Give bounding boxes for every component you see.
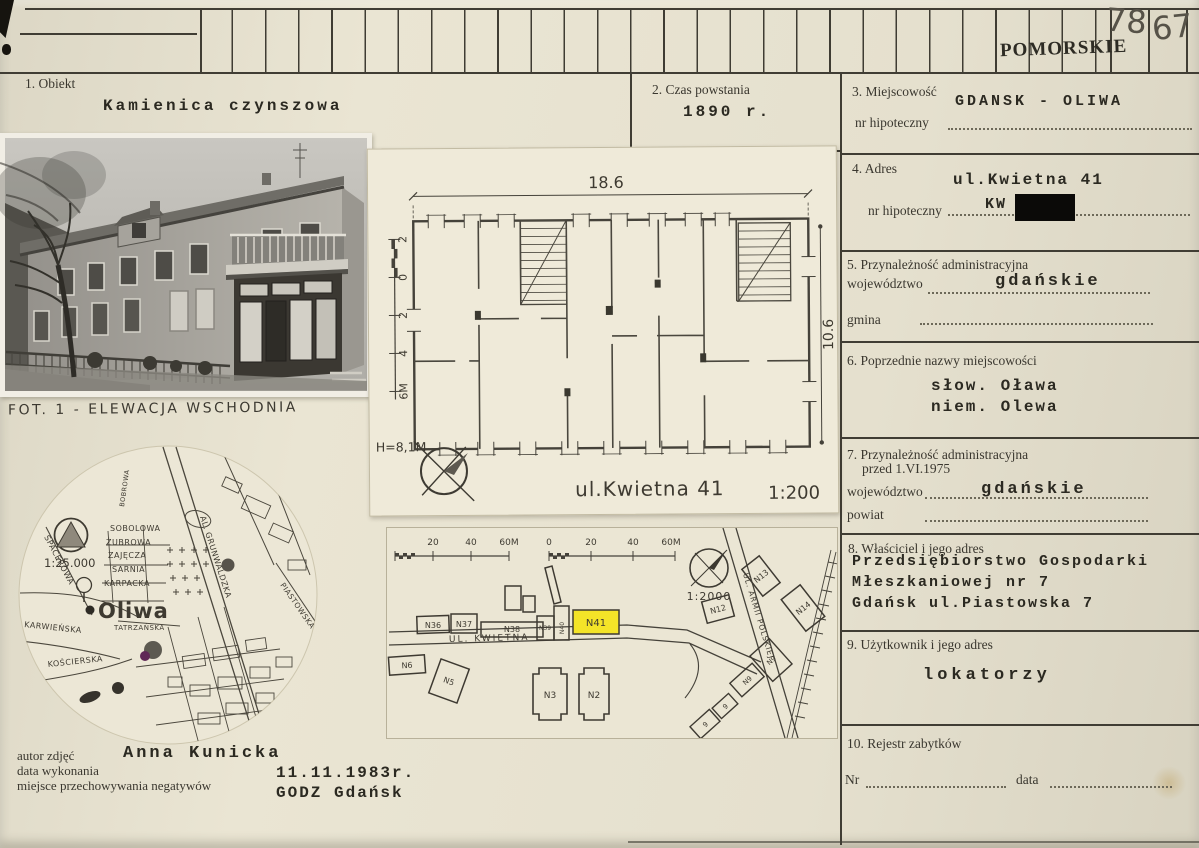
building-n14: N14	[781, 585, 825, 631]
scalebar-tick: 20	[427, 538, 439, 548]
scalebar-tick: 60M	[661, 538, 680, 548]
nr-label: Nr	[845, 772, 859, 788]
name-line-1: słow. Oława	[931, 377, 1059, 395]
redaction-bar	[1015, 194, 1075, 221]
svg-text:N9: N9	[741, 675, 754, 687]
floor-plan-sheet: 18.6	[367, 145, 840, 516]
kw-value: KW	[985, 196, 1007, 213]
ruler-tick: 2	[397, 312, 410, 319]
field-label: 5. Przynależność administracyjna	[847, 257, 1028, 273]
building-label: N36	[425, 621, 441, 630]
street-label: ZAJĘCZA	[108, 551, 146, 560]
dim-height-label: 10.6	[821, 319, 837, 350]
building-label: N40	[559, 622, 566, 634]
facade-photo-image	[0, 133, 372, 397]
street-label: TATRZAŃSKA	[113, 623, 165, 632]
divider	[840, 437, 1199, 439]
building-label: N3	[544, 691, 556, 701]
dotted-line	[925, 497, 1148, 499]
building-label: N38	[504, 625, 520, 634]
divider	[840, 533, 1199, 535]
scan-edge-artifact	[0, 0, 14, 38]
strip-bottom-line	[0, 72, 1199, 74]
divider	[840, 153, 1199, 155]
building-n9a: N9	[730, 663, 764, 696]
divider	[630, 73, 632, 150]
ruler-tick: 2	[396, 236, 409, 243]
ruler-tick: 0	[397, 274, 410, 281]
map-place-label: Oliwa	[98, 599, 169, 623]
map-scale-label: 1:25.000	[44, 556, 95, 570]
data-label: data	[1016, 772, 1039, 788]
strip-left-line	[20, 33, 197, 35]
field-label: 2. Czas powstania	[652, 82, 750, 98]
owner-line-2: Młeszkaniowej nr 7	[852, 574, 1050, 591]
dotted-line	[948, 128, 1192, 130]
field-label-2: przed 1.VI.1975	[862, 461, 950, 477]
building-n5: N5	[429, 659, 470, 703]
svg-text:N6: N6	[401, 661, 413, 671]
building-9a: 9	[690, 709, 720, 738]
svg-text:9: 9	[721, 702, 730, 711]
row-value: gdańskie	[995, 272, 1101, 291]
field-value: lokatorzy	[923, 666, 1051, 685]
paper-stain	[1152, 766, 1186, 800]
site-plan: 20 40 60M 0 20 40 60M 1:2000	[386, 527, 838, 739]
building-label: N37	[456, 620, 472, 629]
street-label: KARPACKA	[104, 579, 150, 588]
heritage-record-card: POMORSKIE 78 67 1. Obiekt Kamienica czyn…	[0, 0, 1199, 848]
plan-scale: 1:200	[768, 482, 820, 503]
author-value: Anna Kunicka	[123, 744, 281, 763]
dotted-line	[920, 323, 1153, 325]
divider	[840, 250, 1199, 252]
row-label: gmina	[847, 312, 881, 328]
scalebar-tick: 40	[627, 538, 639, 548]
field-label: 1. Obiekt	[25, 76, 75, 92]
field-label: 3. Miejscowość	[852, 84, 937, 100]
height-note: H=8,1M	[376, 439, 427, 454]
field-value: Kamienica czynszowa	[103, 97, 342, 115]
field-label: 4. Adres	[852, 161, 897, 177]
building-9b: 9	[712, 693, 738, 718]
dim-width-label: 18.6	[588, 173, 624, 192]
date-label: data wykonania	[17, 763, 99, 779]
field-label: 9. Użytkownik i jego adres	[847, 637, 993, 653]
cell-line	[200, 10, 202, 72]
field-value: ul.Kwietna 41	[953, 171, 1104, 189]
dotted-line	[1050, 786, 1172, 788]
street-label: SOBOLOWA	[110, 524, 160, 533]
date-value: 11.11.1983r.	[276, 764, 415, 782]
voivodeship-stamp: POMORSKIE	[1000, 36, 1128, 62]
handwritten-number-right: 67	[1150, 6, 1194, 48]
photo-caption: FOT. 1 - ELEWACJA WSCHODNIA	[8, 399, 298, 418]
svg-text:UL. KWIETNA: UL. KWIETNA	[449, 633, 530, 645]
svg-text:N13: N13	[752, 568, 770, 585]
city-map-drawing: 1:25.000 Oliwa SPACEROWA KARWIEŃSKA KOŚC…	[18, 445, 318, 745]
dotted-line	[928, 292, 1150, 294]
street-label: ŻUBROWA	[106, 537, 151, 547]
scan-edge-artifact	[2, 44, 11, 55]
right-column-border	[840, 73, 842, 845]
svg-text:N14: N14	[794, 600, 812, 617]
facade-photo	[0, 133, 372, 397]
ruler-tick: 4	[397, 350, 410, 357]
divider	[840, 341, 1199, 343]
svg-text:N12: N12	[709, 603, 727, 616]
handwritten-number-left: 78	[1105, 1, 1148, 42]
plan-title: ul.Kwietna 41	[575, 476, 725, 501]
building-n6: N6	[388, 655, 425, 675]
floor-plan-drawing: 18.6	[368, 146, 839, 515]
scalebar-tick: 20	[585, 538, 597, 548]
sub-label: nr hipoteczny	[855, 115, 929, 131]
city-map: 1:25.000 Oliwa SPACEROWA KARWIEŃSKA KOŚC…	[18, 445, 318, 745]
row-label: województwo	[847, 484, 923, 500]
dotted-line	[866, 786, 1006, 788]
dotted-line	[925, 520, 1148, 522]
field-value: GDANSK - OLIWA	[955, 93, 1123, 110]
negatives-label: miejsce przechowywania negatywów	[17, 778, 211, 794]
svg-text:9: 9	[701, 720, 710, 729]
svg-text:N5: N5	[442, 675, 455, 687]
building-location-marker	[140, 651, 150, 661]
sub-label: nr hipoteczny	[868, 203, 942, 219]
building-label-n41: N41	[586, 618, 606, 629]
owner-line-1: Przedsiębiorstwo Gospodarki	[852, 553, 1149, 570]
ruler-tick: 6M	[397, 383, 410, 400]
street-kwietna-label: UL. KWIETNA	[449, 633, 530, 645]
name-line-2: niem. Olewa	[931, 398, 1059, 416]
building-label: N2	[588, 691, 600, 701]
site-plan-drawing: 20 40 60M 0 20 40 60M 1:2000	[387, 528, 837, 738]
owner-line-3: Gdańsk ul.Piastowska 7	[852, 595, 1094, 612]
cell-line	[1148, 10, 1150, 72]
card-bottom-line	[628, 841, 1199, 843]
divider	[840, 630, 1199, 632]
row-label: województwo	[847, 276, 923, 292]
scalebar-tick: 60M	[499, 538, 518, 548]
ruler-cells	[200, 10, 1110, 72]
divider	[840, 724, 1199, 726]
negatives-value: GODZ Gdańsk	[276, 784, 404, 802]
building-label: N39	[539, 625, 551, 632]
street-label: SARNIA	[112, 565, 145, 574]
field-label: 6. Poprzednie nazwy miejscowości	[847, 353, 1037, 369]
field-label: 10. Rejestr zabytków	[847, 736, 961, 752]
field-value: 1890 r.	[683, 103, 771, 121]
author-label: autor zdjęć	[17, 748, 74, 764]
scalebar-tick: 40	[465, 538, 477, 548]
row-label: powiat	[847, 507, 884, 523]
scalebar-tick: 0	[546, 538, 552, 548]
